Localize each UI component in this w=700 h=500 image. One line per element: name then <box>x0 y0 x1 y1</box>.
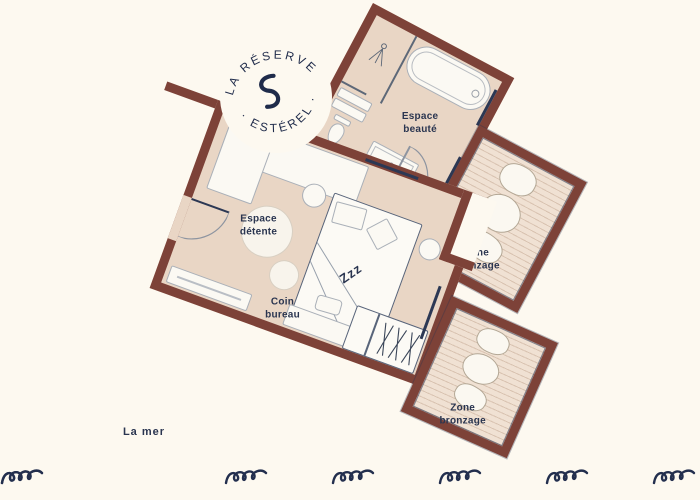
room-label-relax: Espace détente <box>217 212 301 238</box>
wave-icon <box>331 462 377 488</box>
console-line <box>177 276 242 301</box>
pouf <box>265 256 303 294</box>
floor-plan: Espace beauté Zone bronzage <box>0 0 700 500</box>
wardrobe <box>342 305 429 374</box>
shower-icon <box>364 38 396 71</box>
deck-label-bottom: Zone bronzage <box>414 402 512 428</box>
hangers-icon <box>369 319 425 369</box>
wave-icon <box>224 462 270 488</box>
bathtub <box>399 39 497 117</box>
bathtub-inner <box>406 46 491 110</box>
room-label-office: Coin bureau <box>248 296 318 322</box>
wave-icon <box>438 462 484 488</box>
wave-icon <box>652 462 698 488</box>
wave-icon <box>545 462 591 488</box>
tv-console <box>166 265 253 311</box>
sea-label: La mer <box>100 426 188 438</box>
wall-spur <box>164 82 220 110</box>
wave-icon <box>0 462 46 488</box>
room-label-beauty: Espace beauté <box>375 110 465 136</box>
